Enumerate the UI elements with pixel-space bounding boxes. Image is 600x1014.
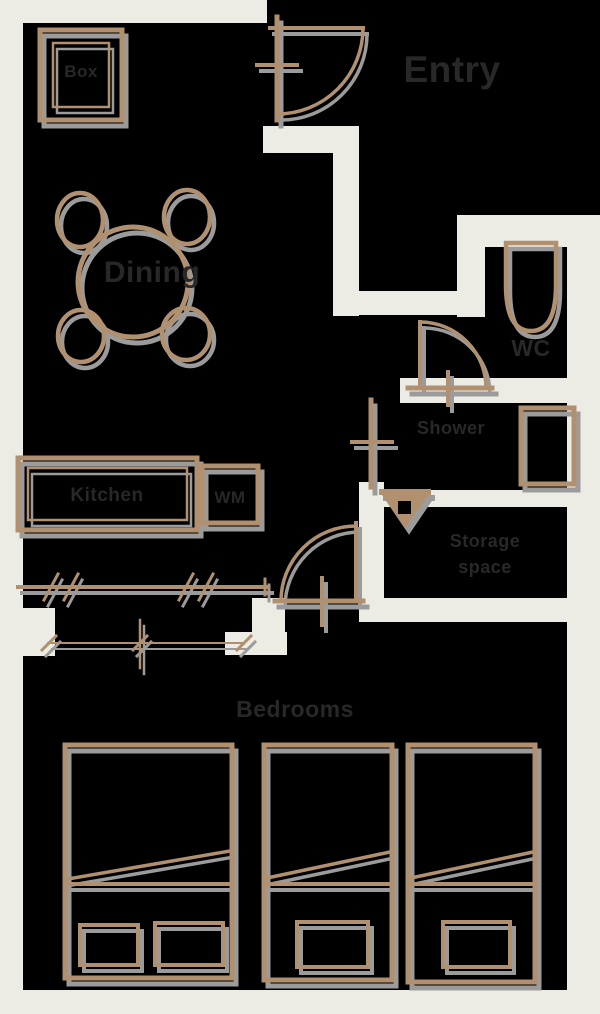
chair-icon: [164, 190, 210, 244]
storage-room-label: Storage space: [432, 528, 538, 580]
walls: [0, 0, 600, 1014]
wall-segment: [333, 291, 485, 315]
bed-single-icon: [408, 745, 535, 982]
shower-label: Shower: [405, 419, 497, 439]
kitchen-label: Kitchen: [28, 486, 186, 507]
chair-icon: [58, 310, 104, 362]
wall-segment: [333, 126, 359, 316]
living-door-icon: [275, 523, 363, 625]
entry-label: Entry: [372, 50, 532, 91]
pillow-icon: [155, 923, 223, 965]
hall-door-icon: [352, 400, 392, 487]
bed-single-icon: [264, 745, 392, 980]
dining-label: Dining: [78, 256, 226, 289]
pillow-icon: [443, 922, 510, 967]
dimension-line: [42, 620, 251, 668]
floorplan: Entry Box Dining Kitchen WM WC Shower St…: [0, 0, 600, 1014]
toilet-label: WC: [501, 336, 561, 361]
storage-room-label-line1: Storage: [432, 528, 538, 554]
wall-top: [0, 0, 267, 23]
floorplan-drawing: [0, 0, 600, 1014]
chair-icon: [57, 193, 103, 247]
wall-segment: [0, 608, 55, 656]
entry-door-icon: [257, 17, 363, 120]
wall-right: [567, 247, 600, 1014]
wall-bottom: [0, 990, 600, 1014]
bed-double-icon: [65, 745, 232, 978]
window-icon: [18, 574, 268, 600]
sink-icon: [382, 492, 428, 527]
bedrooms-label: Bedrooms: [228, 697, 362, 722]
pillow-icon: [297, 922, 368, 967]
wall-segment: [263, 126, 359, 153]
toilet-icon: [506, 243, 556, 331]
chair-icon: [162, 308, 210, 360]
storage-box-label: Box: [36, 63, 126, 82]
wall-segment: [359, 598, 600, 622]
storage-room-label-line2: space: [432, 554, 538, 580]
pillow-icon: [80, 925, 138, 965]
shower-tray-icon: [521, 408, 574, 484]
appliance-label: WM: [200, 489, 260, 508]
